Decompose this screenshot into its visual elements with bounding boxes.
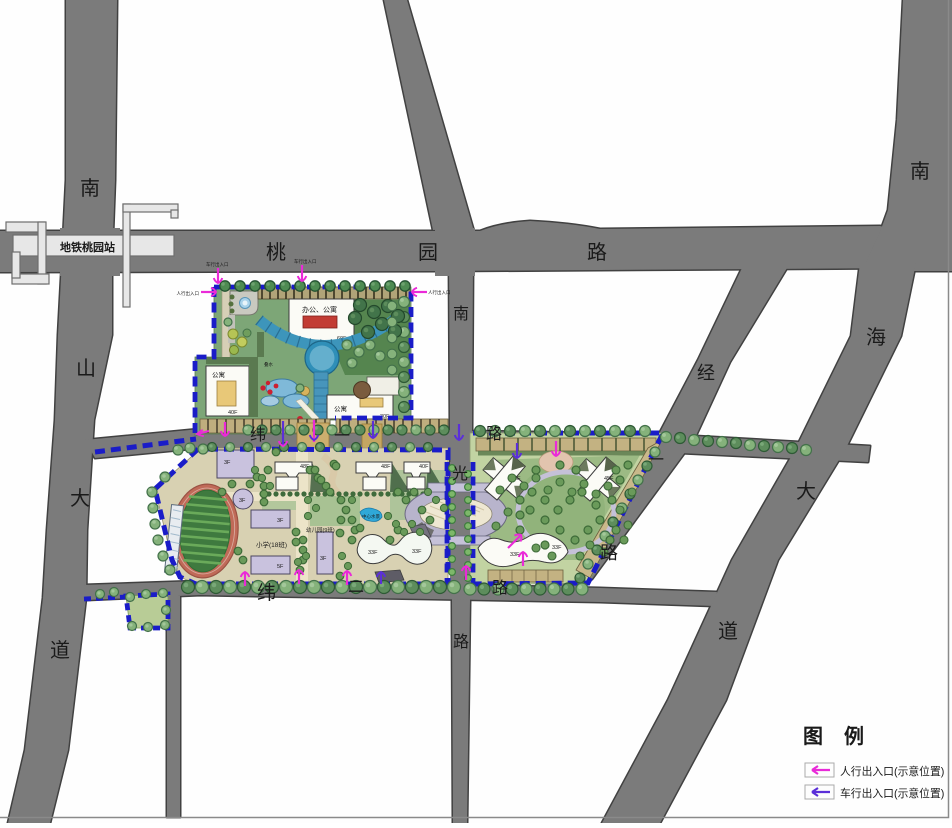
svg-text:人行出入口: 人行出入口 bbox=[428, 289, 451, 296]
svg-text:南: 南 bbox=[453, 305, 469, 323]
svg-text:3F: 3F bbox=[320, 556, 327, 562]
svg-text:道: 道 bbox=[50, 639, 70, 662]
svg-text:40F: 40F bbox=[228, 410, 238, 416]
svg-text:车行出入口: 车行出入口 bbox=[294, 258, 317, 265]
svg-text:例: 例 bbox=[844, 724, 864, 748]
svg-text:路: 路 bbox=[492, 579, 508, 597]
svg-text:路: 路 bbox=[453, 633, 469, 651]
svg-text:33F: 33F bbox=[412, 549, 422, 555]
svg-text:人行出入口: 人行出入口 bbox=[177, 290, 200, 297]
svg-text:图: 图 bbox=[803, 725, 823, 748]
svg-text:大: 大 bbox=[796, 480, 816, 503]
svg-text:3F: 3F bbox=[224, 460, 231, 466]
svg-text:路: 路 bbox=[600, 543, 618, 563]
svg-text:二: 二 bbox=[348, 579, 364, 596]
svg-text:一: 一 bbox=[648, 452, 664, 469]
svg-text:光: 光 bbox=[452, 465, 468, 483]
svg-text:经: 经 bbox=[697, 363, 715, 383]
svg-text:车行出入口(示意位置): 车行出入口(示意位置) bbox=[840, 786, 944, 800]
svg-text:大: 大 bbox=[70, 487, 90, 510]
svg-text:小学(18班): 小学(18班) bbox=[256, 540, 287, 549]
svg-text:山: 山 bbox=[76, 357, 96, 380]
svg-text:公寓: 公寓 bbox=[334, 404, 347, 413]
svg-text:33F: 33F bbox=[552, 545, 562, 551]
svg-text:纬: 纬 bbox=[250, 426, 266, 444]
svg-text:海: 海 bbox=[866, 326, 886, 349]
svg-text:一: 一 bbox=[334, 428, 350, 445]
svg-text:33F: 33F bbox=[368, 550, 378, 556]
svg-text:纬: 纬 bbox=[257, 582, 276, 604]
svg-text:园: 园 bbox=[418, 242, 438, 264]
svg-text:路: 路 bbox=[587, 241, 607, 264]
svg-text:3F: 3F bbox=[239, 498, 246, 504]
svg-text:桃: 桃 bbox=[266, 241, 286, 264]
svg-text:南: 南 bbox=[910, 160, 930, 183]
svg-text:车行出入口: 车行出入口 bbox=[206, 261, 229, 268]
svg-text:幼儿园(9班): 幼儿园(9班) bbox=[306, 526, 335, 534]
svg-text:南: 南 bbox=[80, 177, 100, 200]
svg-text:叠水: 叠水 bbox=[264, 361, 273, 368]
svg-text:人行出入口(示意位置): 人行出入口(示意位置) bbox=[840, 764, 944, 778]
svg-text:中心水景: 中心水景 bbox=[362, 513, 380, 520]
svg-text:48F: 48F bbox=[381, 464, 391, 470]
svg-text:5F: 5F bbox=[277, 564, 284, 570]
svg-text:路: 路 bbox=[486, 425, 502, 443]
svg-text:3F: 3F bbox=[277, 518, 284, 524]
svg-text:40F: 40F bbox=[419, 464, 429, 470]
svg-text:道: 道 bbox=[718, 620, 738, 643]
svg-text:地铁桃园站: 地铁桃园站 bbox=[60, 240, 115, 254]
svg-text:办公、公寓: 办公、公寓 bbox=[302, 305, 337, 314]
svg-text:公寓: 公寓 bbox=[212, 370, 225, 379]
svg-text:45F: 45F bbox=[604, 476, 614, 482]
